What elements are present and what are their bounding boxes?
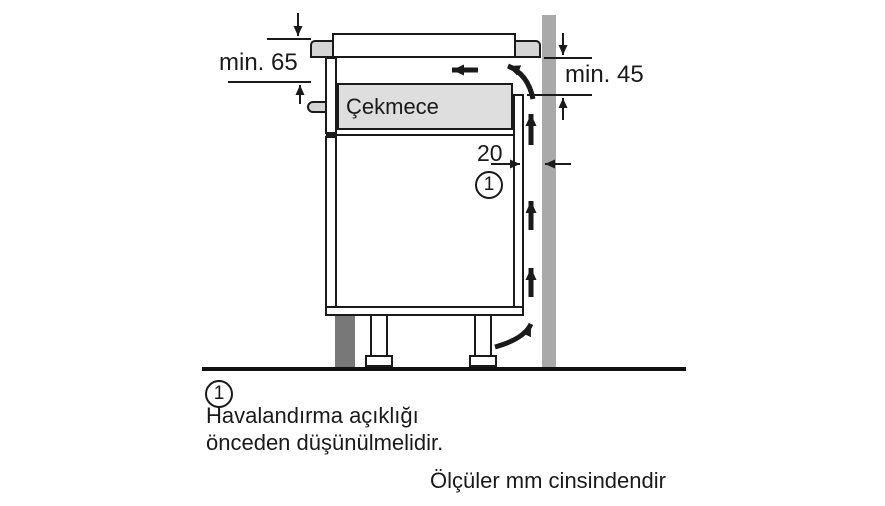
floor-line — [202, 367, 686, 371]
drawer-label: Çekmece — [346, 94, 439, 120]
drawer-front-panel — [325, 57, 337, 134]
vent-callout-number: 1 — [484, 174, 495, 196]
dimension-label-front-clearance: min. 65 — [219, 49, 298, 77]
cabinet-back-panel — [513, 94, 524, 309]
drawer-box: Çekmece — [337, 83, 513, 130]
legend-line-2: önceden düşünülmelidir. — [206, 429, 443, 456]
cabinet-front-panel — [325, 136, 337, 308]
cabinet-leg-right — [474, 314, 492, 357]
legend-line-1: Havalandırma açıklığı — [206, 402, 443, 429]
wall-section — [542, 15, 556, 368]
units-footnote: Ölçüler mm cinsindendir — [430, 468, 666, 494]
cabinet-foot-right — [469, 355, 497, 367]
cabinet-leg-left — [370, 314, 388, 357]
cabinet-bottom-panel — [325, 306, 524, 316]
installation-diagram: Çekmece 1 min. 65 min. 45 20 — [0, 0, 885, 506]
airflow-curve-bottom-icon — [495, 324, 531, 347]
vent-callout-marker: 1 — [475, 171, 503, 199]
cabinet-foot-left — [365, 355, 393, 367]
legend-text: Havalandırma açıklığı önceden düşünülmel… — [206, 402, 443, 456]
cabinet-plinth — [335, 316, 355, 367]
dimension-label-rear-gap: 20 — [477, 140, 503, 167]
dimension-label-rear-clearance: min. 45 — [565, 61, 644, 89]
worktop-right-section — [514, 40, 541, 58]
hob-body — [332, 33, 516, 58]
